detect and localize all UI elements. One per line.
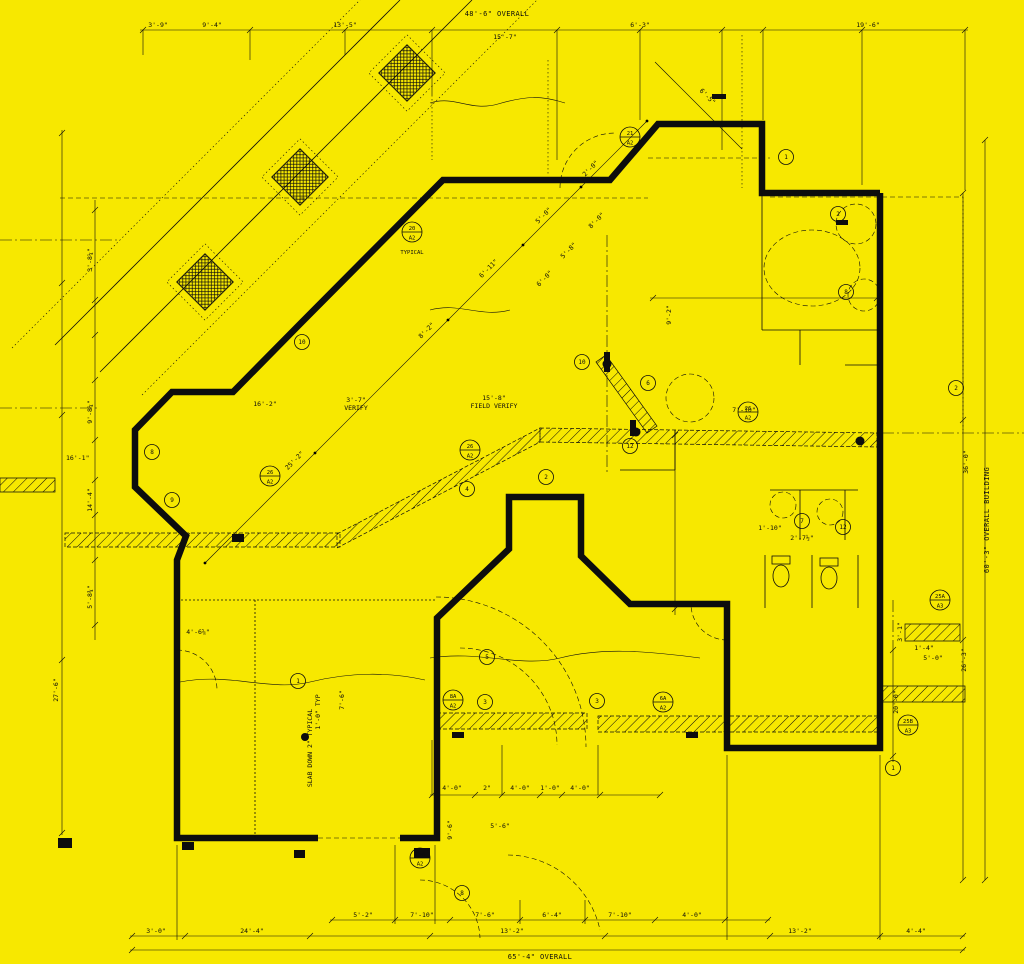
svg-text:3'-1": 3'-1" xyxy=(896,622,904,642)
svg-text:A2: A2 xyxy=(660,706,667,712)
svg-text:26: 26 xyxy=(267,470,274,476)
svg-text:20: 20 xyxy=(409,226,416,232)
overall-dim-bottom: 65'-4" OVERALL xyxy=(508,953,573,961)
svg-text:5: 5 xyxy=(485,654,489,661)
svg-text:A2: A2 xyxy=(467,454,474,460)
svg-text:7'-6": 7'-6" xyxy=(475,911,495,919)
svg-text:5'-0": 5'-0" xyxy=(534,206,554,226)
svg-text:10: 10 xyxy=(578,359,586,366)
keynote-bubble: 26A2 xyxy=(260,466,280,486)
svg-text:8A: 8A xyxy=(450,694,457,700)
svg-text:13'-5": 13'-5" xyxy=(333,21,356,29)
svg-text:4'-4": 4'-4" xyxy=(906,927,926,935)
svg-text:6A: 6A xyxy=(660,696,667,702)
hatched-walls xyxy=(0,355,965,732)
svg-text:A2: A2 xyxy=(450,704,457,710)
svg-text:20'-0": 20'-0" xyxy=(892,690,900,713)
svg-text:2": 2" xyxy=(483,784,491,792)
svg-text:25'-2": 25'-2" xyxy=(283,449,305,471)
svg-text:3'-9": 3'-9" xyxy=(148,21,168,29)
svg-text:4: 4 xyxy=(465,486,469,493)
keynote-bubble: 20 A2 TYPICAL xyxy=(400,222,424,256)
svg-text:8'-2": 8'-2" xyxy=(417,321,437,341)
svg-text:2: 2 xyxy=(836,211,840,218)
svg-text:14'-4": 14'-4" xyxy=(86,488,94,511)
svg-text:A2: A2 xyxy=(409,236,416,242)
svg-text:6'-11": 6'-11" xyxy=(477,257,499,279)
svg-text:A3: A3 xyxy=(937,604,944,610)
svg-text:9: 9 xyxy=(170,497,174,504)
svg-text:26: 26 xyxy=(467,444,474,450)
svg-text:1'-0" TYP: 1'-0" TYP xyxy=(314,694,322,729)
svg-text:12: 12 xyxy=(626,443,634,450)
svg-text:6'-3": 6'-3" xyxy=(630,21,650,29)
svg-text:1'-4": 1'-4" xyxy=(914,644,934,652)
svg-text:8'-0": 8'-0" xyxy=(587,211,607,231)
svg-text:3'-8¼": 3'-8¼" xyxy=(86,248,94,271)
svg-text:2'-7½": 2'-7½" xyxy=(790,534,813,542)
svg-text:8: 8 xyxy=(150,449,154,456)
svg-text:3: 3 xyxy=(595,698,599,705)
svg-text:5'-2": 5'-2" xyxy=(353,911,373,919)
column-diamond xyxy=(167,244,243,320)
svg-text:9'-6": 9'-6" xyxy=(446,820,454,840)
column-diamond xyxy=(369,35,445,111)
svg-text:A2: A2 xyxy=(745,416,752,422)
svg-text:A2: A2 xyxy=(417,862,424,868)
svg-text:25A: 25A xyxy=(415,852,426,858)
svg-text:5'-0": 5'-0" xyxy=(923,654,943,662)
floor-plan-sheet: 20 A2 TYPICAL 26A2 26A2 21A2 8AA2 6AA2 2… xyxy=(0,0,1024,964)
overall-dim-right: 60'-3" OVERALL BUILDING xyxy=(983,467,991,573)
svg-text:VERIFY: VERIFY xyxy=(344,404,368,412)
slab-note: SLAB DOWN 2" TYPICAL xyxy=(306,709,314,787)
svg-text:13'-2": 13'-2" xyxy=(788,927,811,935)
toilet-fixture xyxy=(820,558,838,589)
svg-text:7'-10": 7'-10" xyxy=(410,911,433,919)
svg-text:13'-2": 13'-2" xyxy=(500,927,523,935)
svg-text:2: 2 xyxy=(544,474,548,481)
centerlines xyxy=(0,35,1024,648)
svg-text:15'-8": 15'-8" xyxy=(482,394,505,402)
svg-text:4'-0": 4'-0" xyxy=(682,911,702,919)
svg-text:19'-6": 19'-6" xyxy=(856,21,879,29)
overall-dim-top: 48'-6" OVERALL xyxy=(465,10,530,18)
keynote-bubble: 25AA3 xyxy=(930,590,950,610)
svg-text:1'-10": 1'-10" xyxy=(758,524,781,532)
interior-details xyxy=(58,94,880,938)
svg-text:26'-3": 26'-3" xyxy=(960,648,968,671)
svg-text:6'-4": 6'-4" xyxy=(542,911,562,919)
svg-text:4'-0": 4'-0" xyxy=(570,784,590,792)
svg-text:10: 10 xyxy=(298,339,306,346)
svg-text:1: 1 xyxy=(296,678,300,685)
svg-text:16'-2": 16'-2" xyxy=(253,400,276,408)
svg-text:5'-8¾": 5'-8¾" xyxy=(86,585,94,608)
svg-text:5'-6": 5'-6" xyxy=(490,822,510,830)
keynote-bubbles: 20 A2 TYPICAL 26A2 26A2 21A2 8AA2 6AA2 2… xyxy=(260,127,950,868)
svg-text:7'-10": 7'-10" xyxy=(732,406,755,414)
svg-text:A2: A2 xyxy=(267,480,274,486)
svg-text:8: 8 xyxy=(844,289,848,296)
svg-text:16'-1": 16'-1" xyxy=(66,454,89,462)
svg-text:15'-7": 15'-7" xyxy=(493,33,516,41)
svg-text:6'-0": 6'-0" xyxy=(535,269,555,289)
floor-plan-drawing: 20 A2 TYPICAL 26A2 26A2 21A2 8AA2 6AA2 2… xyxy=(0,0,1024,964)
svg-text:4'-0": 4'-0" xyxy=(442,784,462,792)
svg-text:A3: A3 xyxy=(905,729,912,735)
svg-text:1: 1 xyxy=(784,154,788,161)
svg-text:27'-6": 27'-6" xyxy=(52,678,60,701)
svg-text:8: 8 xyxy=(460,890,464,897)
svg-text:2'-0": 2'-0" xyxy=(581,159,601,179)
svg-text:FIELD VERIFY: FIELD VERIFY xyxy=(471,402,518,410)
svg-text:36'-0": 36'-0" xyxy=(962,450,970,473)
svg-text:6: 6 xyxy=(646,380,650,387)
diagonal-wing xyxy=(12,0,742,564)
svg-text:7: 7 xyxy=(800,518,804,525)
svg-text:7'-6": 7'-6" xyxy=(338,690,346,710)
svg-text:7'-10": 7'-10" xyxy=(608,911,631,919)
keynote-bubble: 21A2 xyxy=(620,127,640,147)
svg-text:21: 21 xyxy=(627,131,634,137)
column-diamond xyxy=(262,139,338,215)
toilet-fixture xyxy=(772,556,790,587)
svg-text:4'-6⅝": 4'-6⅝" xyxy=(186,628,209,636)
keynote-bubble: 8AA2 xyxy=(443,690,463,710)
keynote-bubble: 6AA2 xyxy=(653,692,673,712)
dimension-labels: 48'-6" OVERALL 3'-9" 9'-4" 13'-5" 15'-7"… xyxy=(52,10,991,961)
svg-text:12: 12 xyxy=(839,524,847,531)
svg-text:6'-5": 6'-5" xyxy=(698,87,718,107)
keynote-bubble: 26A2 xyxy=(460,440,480,460)
svg-text:9'-8¼": 9'-8¼" xyxy=(86,400,94,423)
svg-text:1: 1 xyxy=(891,765,895,772)
svg-text:9'-4": 9'-4" xyxy=(202,21,222,29)
svg-text:3'-7": 3'-7" xyxy=(346,396,366,404)
svg-text:5'-8": 5'-8" xyxy=(559,241,579,261)
svg-text:25B: 25B xyxy=(903,719,914,725)
svg-text:1'-0": 1'-0" xyxy=(540,784,560,792)
svg-text:3'-0": 3'-0" xyxy=(146,927,166,935)
svg-text:9'-2": 9'-2" xyxy=(665,305,673,325)
svg-text:3: 3 xyxy=(483,699,487,706)
svg-text:4'-0": 4'-0" xyxy=(510,784,530,792)
svg-text:25A: 25A xyxy=(935,594,946,600)
svg-text:2: 2 xyxy=(954,385,958,392)
svg-text:24'-4": 24'-4" xyxy=(240,927,263,935)
svg-text:A2: A2 xyxy=(627,141,634,147)
svg-text:TYPICAL: TYPICAL xyxy=(400,250,424,256)
keynote-bubble: 25BA3 xyxy=(898,715,918,735)
